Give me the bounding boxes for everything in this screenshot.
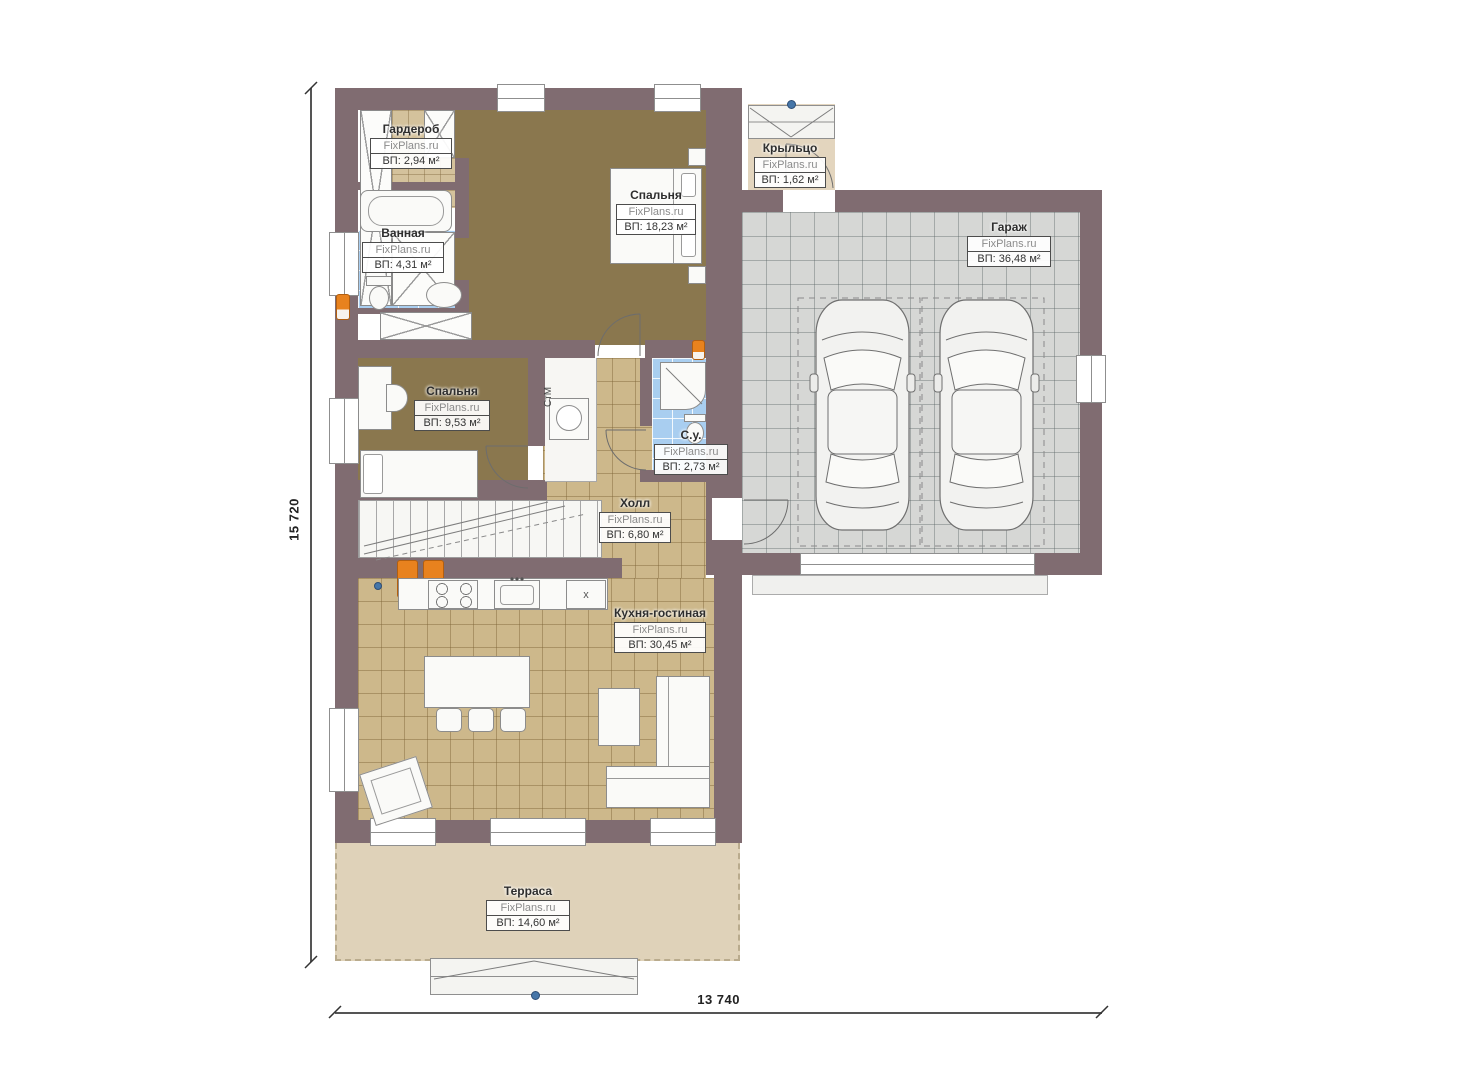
window-left-kitchen bbox=[329, 708, 359, 792]
window-kitchen-bottom-2 bbox=[650, 818, 716, 846]
window-left-bathroom bbox=[329, 232, 359, 296]
room-label-terrace: Терраса FixPlans.ru ВП: 14,60 м² bbox=[486, 884, 570, 931]
wall-kitchen-top bbox=[335, 558, 622, 578]
terrace-steps bbox=[430, 958, 638, 995]
terrace-door bbox=[490, 818, 586, 846]
washing-machine-drum bbox=[556, 405, 582, 431]
wall-wardrobe-divider-upper bbox=[455, 158, 469, 238]
radiator-icon bbox=[336, 294, 350, 320]
sofa-horizontal bbox=[606, 766, 710, 808]
porch-steps bbox=[748, 105, 835, 139]
wall-kitchen-bottom-2 bbox=[435, 820, 491, 843]
wall-garage-bottom-left bbox=[742, 553, 800, 575]
dining-island bbox=[424, 656, 530, 708]
wall-block1-bottom-left bbox=[335, 340, 595, 358]
pillow bbox=[363, 454, 383, 494]
toilet-tank bbox=[366, 276, 392, 286]
survey-point-marker bbox=[531, 991, 540, 1000]
floor-plan: СтМ x bbox=[0, 0, 1474, 1080]
dimension-height: 15 720 bbox=[287, 484, 302, 556]
sink-basin bbox=[500, 585, 534, 605]
bathroom-sink bbox=[426, 282, 462, 308]
room-label-hall: Холл FixPlans.ru ВП: 6,80 м² bbox=[599, 496, 671, 543]
dimension-line-horizontal bbox=[335, 1012, 1102, 1014]
survey-point-marker bbox=[787, 100, 796, 109]
kitchen-unit: x bbox=[566, 580, 606, 609]
nightstand bbox=[688, 266, 706, 284]
stool bbox=[436, 708, 462, 732]
toilet-tank bbox=[684, 414, 706, 422]
radiator-icon bbox=[692, 340, 705, 360]
window-top-1 bbox=[497, 84, 545, 112]
washing-machine-label: СтМ bbox=[543, 363, 555, 407]
staircase bbox=[358, 500, 602, 558]
window-top-2 bbox=[654, 84, 701, 112]
toilet-bowl bbox=[369, 286, 389, 310]
front-door-opening bbox=[783, 190, 835, 212]
garage-apron bbox=[752, 575, 1048, 595]
stool bbox=[500, 708, 526, 732]
room-label-bedroom-master: Спальня FixPlans.ru ВП: 18,23 м² bbox=[616, 188, 696, 235]
kitchen-sink bbox=[494, 580, 540, 609]
wall-kitchen-right bbox=[714, 575, 742, 823]
wall-kitchen-bottom-1 bbox=[335, 820, 371, 843]
wall-kitchen-bottom-4 bbox=[714, 820, 742, 843]
bathtub-inner bbox=[368, 196, 444, 226]
shower bbox=[660, 362, 706, 410]
room-label-kitchen-living: Кухня-гостиная FixPlans.ru ВП: 30,45 м² bbox=[614, 606, 706, 653]
stove bbox=[428, 580, 478, 609]
nightstand bbox=[688, 148, 706, 166]
armchair-seat bbox=[370, 767, 421, 814]
room-label-bathroom: Ванная FixPlans.ru ВП: 4,31 м² bbox=[362, 226, 444, 273]
coffee-table bbox=[598, 688, 640, 746]
room-label-wardrobe: Гардероб FixPlans.ru ВП: 2,94 м² bbox=[370, 122, 452, 169]
room-label-bedroom-second: Спальня FixPlans.ru ВП: 9,53 м² bbox=[414, 384, 490, 431]
dimension-width: 13 740 bbox=[664, 992, 740, 1007]
window-left-bedroom2 bbox=[329, 398, 359, 464]
garage-door bbox=[800, 553, 1035, 575]
dimension-line-vertical bbox=[310, 88, 312, 962]
room-label-porch: Крыльцо FixPlans.ru ВП: 1,62 м² bbox=[754, 141, 826, 188]
stool bbox=[468, 708, 494, 732]
wall-garage-bottom-right bbox=[1035, 553, 1102, 575]
pillow bbox=[681, 233, 696, 257]
faucet-icon bbox=[509, 577, 525, 582]
wall-wc-left bbox=[640, 358, 652, 426]
hall-garage-door-opening bbox=[712, 498, 742, 540]
wall-kitchen-bottom-3 bbox=[585, 820, 651, 843]
survey-point-marker bbox=[374, 582, 382, 590]
room-label-garage: Гараж FixPlans.ru ВП: 36,48 м² bbox=[967, 220, 1051, 267]
room-label-wc: С.у. FixPlans.ru ВП: 2,73 м² bbox=[654, 428, 728, 475]
bed-second bbox=[360, 450, 478, 498]
bedroom-cabinet bbox=[380, 312, 472, 340]
window-garage-right bbox=[1076, 355, 1106, 403]
